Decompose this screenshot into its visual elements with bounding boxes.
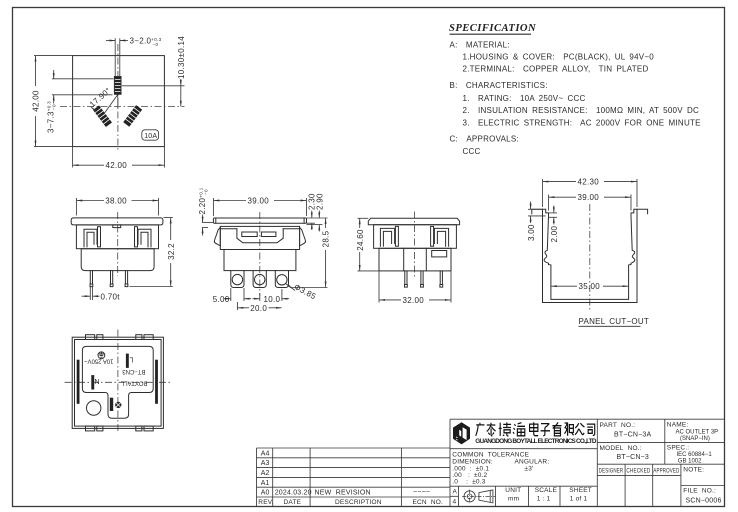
svg-text:4: 4 xyxy=(453,499,457,506)
svg-text:NAME:: NAME: xyxy=(667,422,689,429)
svg-text:REV.: REV. xyxy=(258,499,273,506)
svg-text:CHECKED: CHECKED xyxy=(626,468,650,475)
svg-text:DIMENSION:: DIMENSION: xyxy=(452,458,493,465)
svg-text:SPECIFICATION: SPECIFICATION xyxy=(449,23,536,34)
svg-text:MODEL NO.:: MODEL NO.: xyxy=(600,445,642,452)
svg-text:B: CHARACTERISTICS:: B: CHARACTERISTICS: xyxy=(450,81,548,90)
svg-text:FILE NO.:: FILE NO.: xyxy=(683,488,716,495)
svg-text:.0 : ±0.3: .0 : ±0.3 xyxy=(452,478,485,485)
svg-text:C: APPROVALS:: C: APPROVALS: xyxy=(450,135,519,144)
svg-text:1 : 1: 1 : 1 xyxy=(537,496,551,503)
svg-text:2.00: 2.00 xyxy=(550,225,559,242)
svg-text:APPROVED: APPROVED xyxy=(653,468,679,475)
svg-text:A3: A3 xyxy=(261,460,270,467)
svg-text:1 of 1: 1 of 1 xyxy=(570,496,588,503)
svg-text:10A: 10A xyxy=(144,133,157,140)
svg-text:2.20+0.1−0: 2.20+0.1−0 xyxy=(198,187,208,214)
svg-text:±3': ±3' xyxy=(525,465,534,472)
svg-text:AC OUTLET 3P: AC OUTLET 3P xyxy=(676,429,719,435)
svg-text:L: L xyxy=(129,356,133,363)
svg-text:SCN−0006: SCN−0006 xyxy=(686,498,722,505)
svg-text:42.00: 42.00 xyxy=(106,161,128,170)
svg-text:38.00: 38.00 xyxy=(105,197,127,206)
svg-text:A0: A0 xyxy=(261,490,270,497)
svg-text:32.2: 32.2 xyxy=(167,243,176,260)
svg-text:10.0: 10.0 xyxy=(264,295,281,304)
svg-text:5.00: 5.00 xyxy=(213,295,230,304)
svg-text:PART NO.:: PART NO.: xyxy=(600,422,636,429)
svg-text:SHEET: SHEET xyxy=(569,487,592,494)
svg-text:CCC: CCC xyxy=(463,147,481,156)
svg-text:3−2.0+0.3−0: 3−2.0+0.3−0 xyxy=(130,37,162,47)
svg-text:(SNAP−IN): (SNAP−IN) xyxy=(680,436,710,442)
svg-text:35.00: 35.00 xyxy=(579,282,601,291)
svg-text:42.30: 42.30 xyxy=(578,178,600,187)
svg-text:3−7.3+0.3−0: 3−7.3+0.3−0 xyxy=(46,101,56,133)
svg-text:BT−CN−3: BT−CN−3 xyxy=(617,454,650,461)
svg-text:A1: A1 xyxy=(261,480,270,487)
svg-text:0.70t: 0.70t xyxy=(101,292,121,301)
svg-text:1. RATING: 10A 250V~ CCC: 1. RATING: 10A 250V~ CCC xyxy=(463,94,586,103)
svg-text:2024.03.20: 2024.03.20 xyxy=(275,490,312,497)
svg-text:SPEC.:: SPEC.: xyxy=(667,445,690,452)
svg-text:A: MATERIAL:: A: MATERIAL: xyxy=(450,41,510,50)
svg-text:N: N xyxy=(94,377,99,384)
svg-text:A: A xyxy=(453,489,458,496)
svg-text:2.TERMINAL: COPPER ALLOY, TI: 2.TERMINAL: COPPER ALLOY, TIN PLATED xyxy=(463,65,649,74)
svg-text:39.00: 39.00 xyxy=(578,193,600,202)
svg-text:32.00: 32.00 xyxy=(403,296,425,305)
svg-text:SCALE: SCALE xyxy=(535,487,558,494)
svg-text:BOYTALL: BOYTALL xyxy=(120,380,147,386)
svg-text:3. ELECTRIC STRENGTH: AC 200: 3. ELECTRIC STRENGTH: AC 2000V FOR ONE M… xyxy=(463,119,701,128)
svg-text:mm: mm xyxy=(508,496,519,503)
svg-text:BT−CN−3A: BT−CN−3A xyxy=(614,432,652,439)
svg-text:24.60: 24.60 xyxy=(356,229,365,251)
svg-text:GB 1002: GB 1002 xyxy=(678,459,702,465)
svg-text:DATE: DATE xyxy=(284,499,302,506)
svg-text:UNIT: UNIT xyxy=(505,487,521,494)
svg-text:10A 250V~: 10A 250V~ xyxy=(83,358,113,364)
svg-text:20.0: 20.0 xyxy=(250,304,267,313)
svg-text:10.30±0.14: 10.30±0.14 xyxy=(177,36,186,79)
svg-text:BT−CN3: BT−CN3 xyxy=(122,368,146,374)
svg-text:GUANGDONG BOYTALL ELECTRONICS: GUANGDONG BOYTALL ELECTRONICS CO.,LTD xyxy=(475,438,597,445)
svg-text:28.5: 28.5 xyxy=(322,230,331,247)
svg-text:DESIGNER: DESIGNER xyxy=(599,468,624,475)
svg-text:PANEL CUT−OUT: PANEL CUT−OUT xyxy=(579,317,650,326)
svg-text:−−−−: −−−− xyxy=(413,489,430,496)
svg-text:NOTE:: NOTE: xyxy=(683,467,704,474)
svg-text:COMMON TOLERANCE: COMMON TOLERANCE xyxy=(452,451,529,458)
svg-text:NEW REVISION: NEW REVISION xyxy=(315,490,371,497)
svg-text:2.90: 2.90 xyxy=(315,193,324,210)
svg-text:IEC 60884−1: IEC 60884−1 xyxy=(677,452,713,458)
svg-text:39.00: 39.00 xyxy=(248,197,270,206)
svg-text:1.HOUSING & COVER: PC(BLACK),: 1.HOUSING & COVER: PC(BLACK), UL 94V−0 xyxy=(463,53,655,62)
svg-text:42.00: 42.00 xyxy=(32,90,41,112)
svg-text:DESCRIPTION: DESCRIPTION xyxy=(335,499,382,506)
svg-text:2. INSULATION RESISTANCE: 10: 2. INSULATION RESISTANCE: 100MΩ MIN, AT … xyxy=(463,106,700,115)
svg-text:ECN NO.: ECN NO. xyxy=(413,499,444,506)
svg-text:A2: A2 xyxy=(261,470,270,477)
svg-text:ANGULAR:: ANGULAR: xyxy=(515,458,550,465)
svg-text:A4: A4 xyxy=(261,450,270,457)
svg-text:3.00: 3.00 xyxy=(527,224,536,241)
